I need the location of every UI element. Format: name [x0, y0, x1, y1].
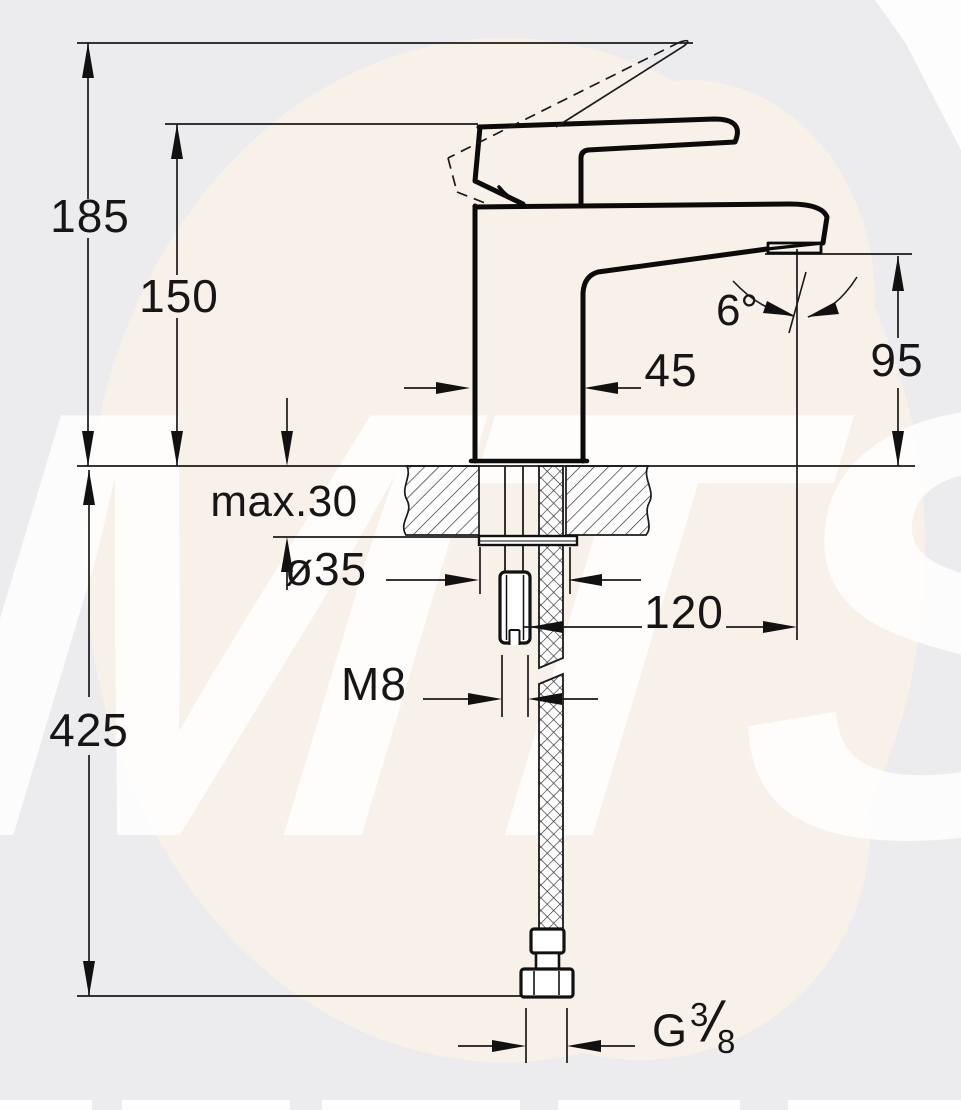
- dim-label-outlet-height: 95: [870, 337, 923, 383]
- dimension-arrows: [82, 43, 904, 1052]
- dim-label-body-width: 45: [644, 347, 697, 393]
- dim-label-spout-projection: 120: [644, 589, 724, 635]
- dim-label-hole-diameter: ø35: [285, 546, 367, 592]
- handle-left-edge: [475, 127, 523, 204]
- technical-drawing-page: MTS: [0, 0, 961, 1110]
- dim-label-stud-thread: M8: [341, 661, 407, 707]
- countertop-section: [404, 466, 651, 535]
- hose-neck: [536, 953, 559, 969]
- dim-label-handle-height: 150: [139, 273, 219, 319]
- dim-label-hose-length: 425: [49, 707, 129, 753]
- connection-denominator: 8: [717, 1025, 735, 1058]
- dim-label-hose-connection: G 3 / 8: [652, 998, 735, 1058]
- dim-label-deck-thickness: max.30: [210, 480, 357, 524]
- connection-prefix: G: [652, 1008, 687, 1053]
- hose-collar: [531, 929, 564, 953]
- hose-hex-nut: [521, 969, 573, 997]
- faucet-body: [471, 119, 827, 461]
- dim-label-overall-height: 185: [50, 193, 130, 239]
- faucet-technical-drawing: [0, 0, 961, 1110]
- body-top-and-spout-face: [475, 204, 827, 243]
- dim-label-spout-angle: 6°: [716, 289, 758, 333]
- extension-lines: [77, 43, 915, 1063]
- lever-handle: [479, 119, 737, 204]
